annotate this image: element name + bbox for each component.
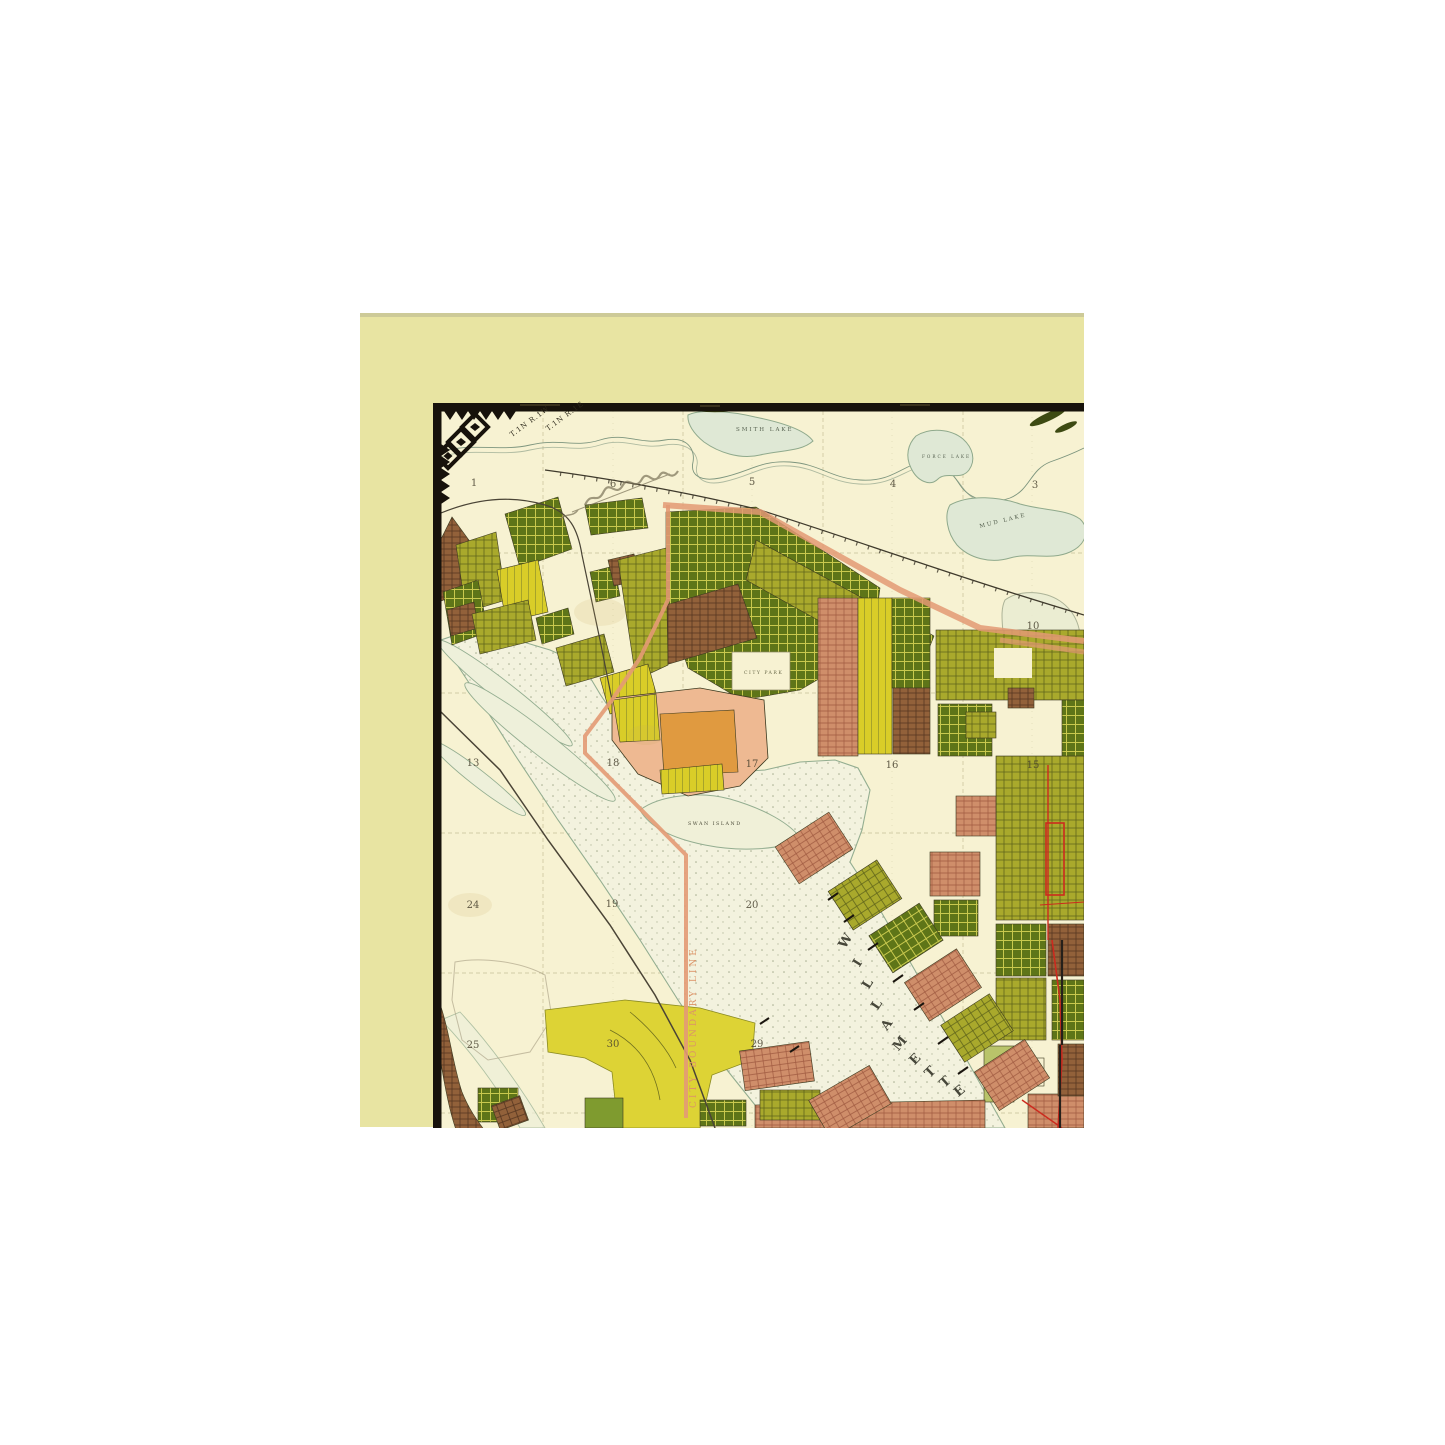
section-number: 15 bbox=[1027, 760, 1040, 771]
section-number: 17 bbox=[746, 759, 759, 770]
section-number: 24 bbox=[467, 900, 480, 911]
section-number: 5 bbox=[749, 477, 755, 488]
map-canvas: { "map": { "description": "Antique plat … bbox=[0, 0, 1445, 1445]
section-number: 29 bbox=[751, 1039, 764, 1050]
section-number: 20 bbox=[746, 900, 759, 911]
section-number: 3 bbox=[1032, 480, 1038, 491]
section-number: 16 bbox=[886, 760, 899, 771]
paper-top-edge-shadow bbox=[360, 313, 1084, 317]
section-number: 18 bbox=[607, 758, 620, 769]
city-park-label: CITY PARK bbox=[744, 670, 783, 676]
section-number: 25 bbox=[467, 1040, 480, 1051]
force-lake-label: FORCE LAKE bbox=[922, 454, 971, 459]
section-number: 19 bbox=[606, 899, 619, 910]
section-number: 10 bbox=[1027, 621, 1040, 632]
section-number: 4 bbox=[890, 479, 896, 490]
city-boundary-label: CITY BOUNDARY LINE bbox=[689, 946, 699, 1108]
section-number: 6 bbox=[610, 479, 616, 490]
section-number: 1 bbox=[471, 478, 477, 489]
section-number: 13 bbox=[467, 758, 480, 769]
antique-map: T.1N R.1W T.1N R.1E SMITH LAKE FORCE LAK… bbox=[0, 0, 1445, 1445]
section-number: 30 bbox=[607, 1039, 620, 1050]
smith-lake-label: SMITH LAKE bbox=[736, 427, 794, 433]
swan-island-label: SWAN ISLAND bbox=[688, 821, 742, 827]
